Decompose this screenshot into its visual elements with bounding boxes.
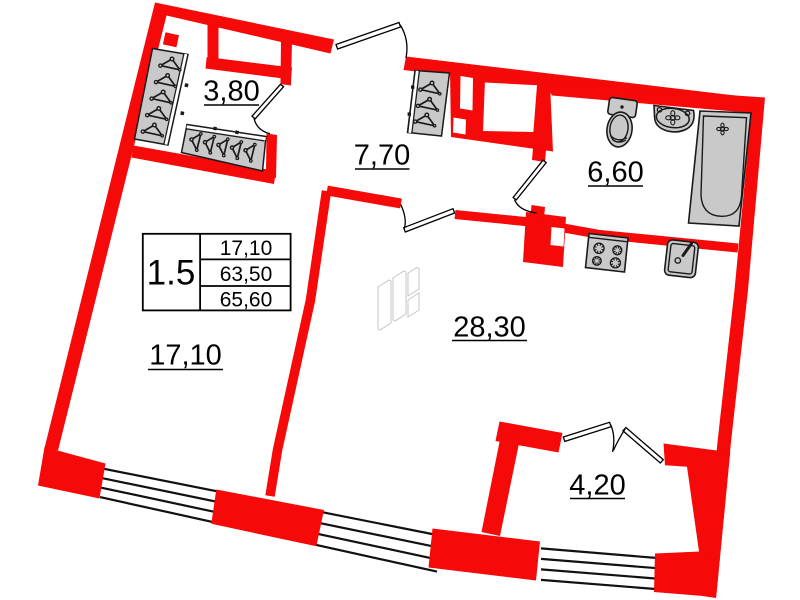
- svg-text:63,50: 63,50: [220, 263, 273, 286]
- svg-text:7,70: 7,70: [354, 140, 410, 172]
- svg-text:17,10: 17,10: [220, 237, 273, 260]
- svg-text:17,10: 17,10: [149, 340, 222, 372]
- svg-text:4,20: 4,20: [569, 470, 625, 502]
- svg-text:3,80: 3,80: [203, 76, 259, 108]
- svg-text:65,60: 65,60: [220, 289, 273, 312]
- svg-text:6,60: 6,60: [587, 157, 643, 189]
- svg-text:1.5: 1.5: [147, 254, 196, 293]
- svg-text:28,30: 28,30: [453, 312, 526, 344]
